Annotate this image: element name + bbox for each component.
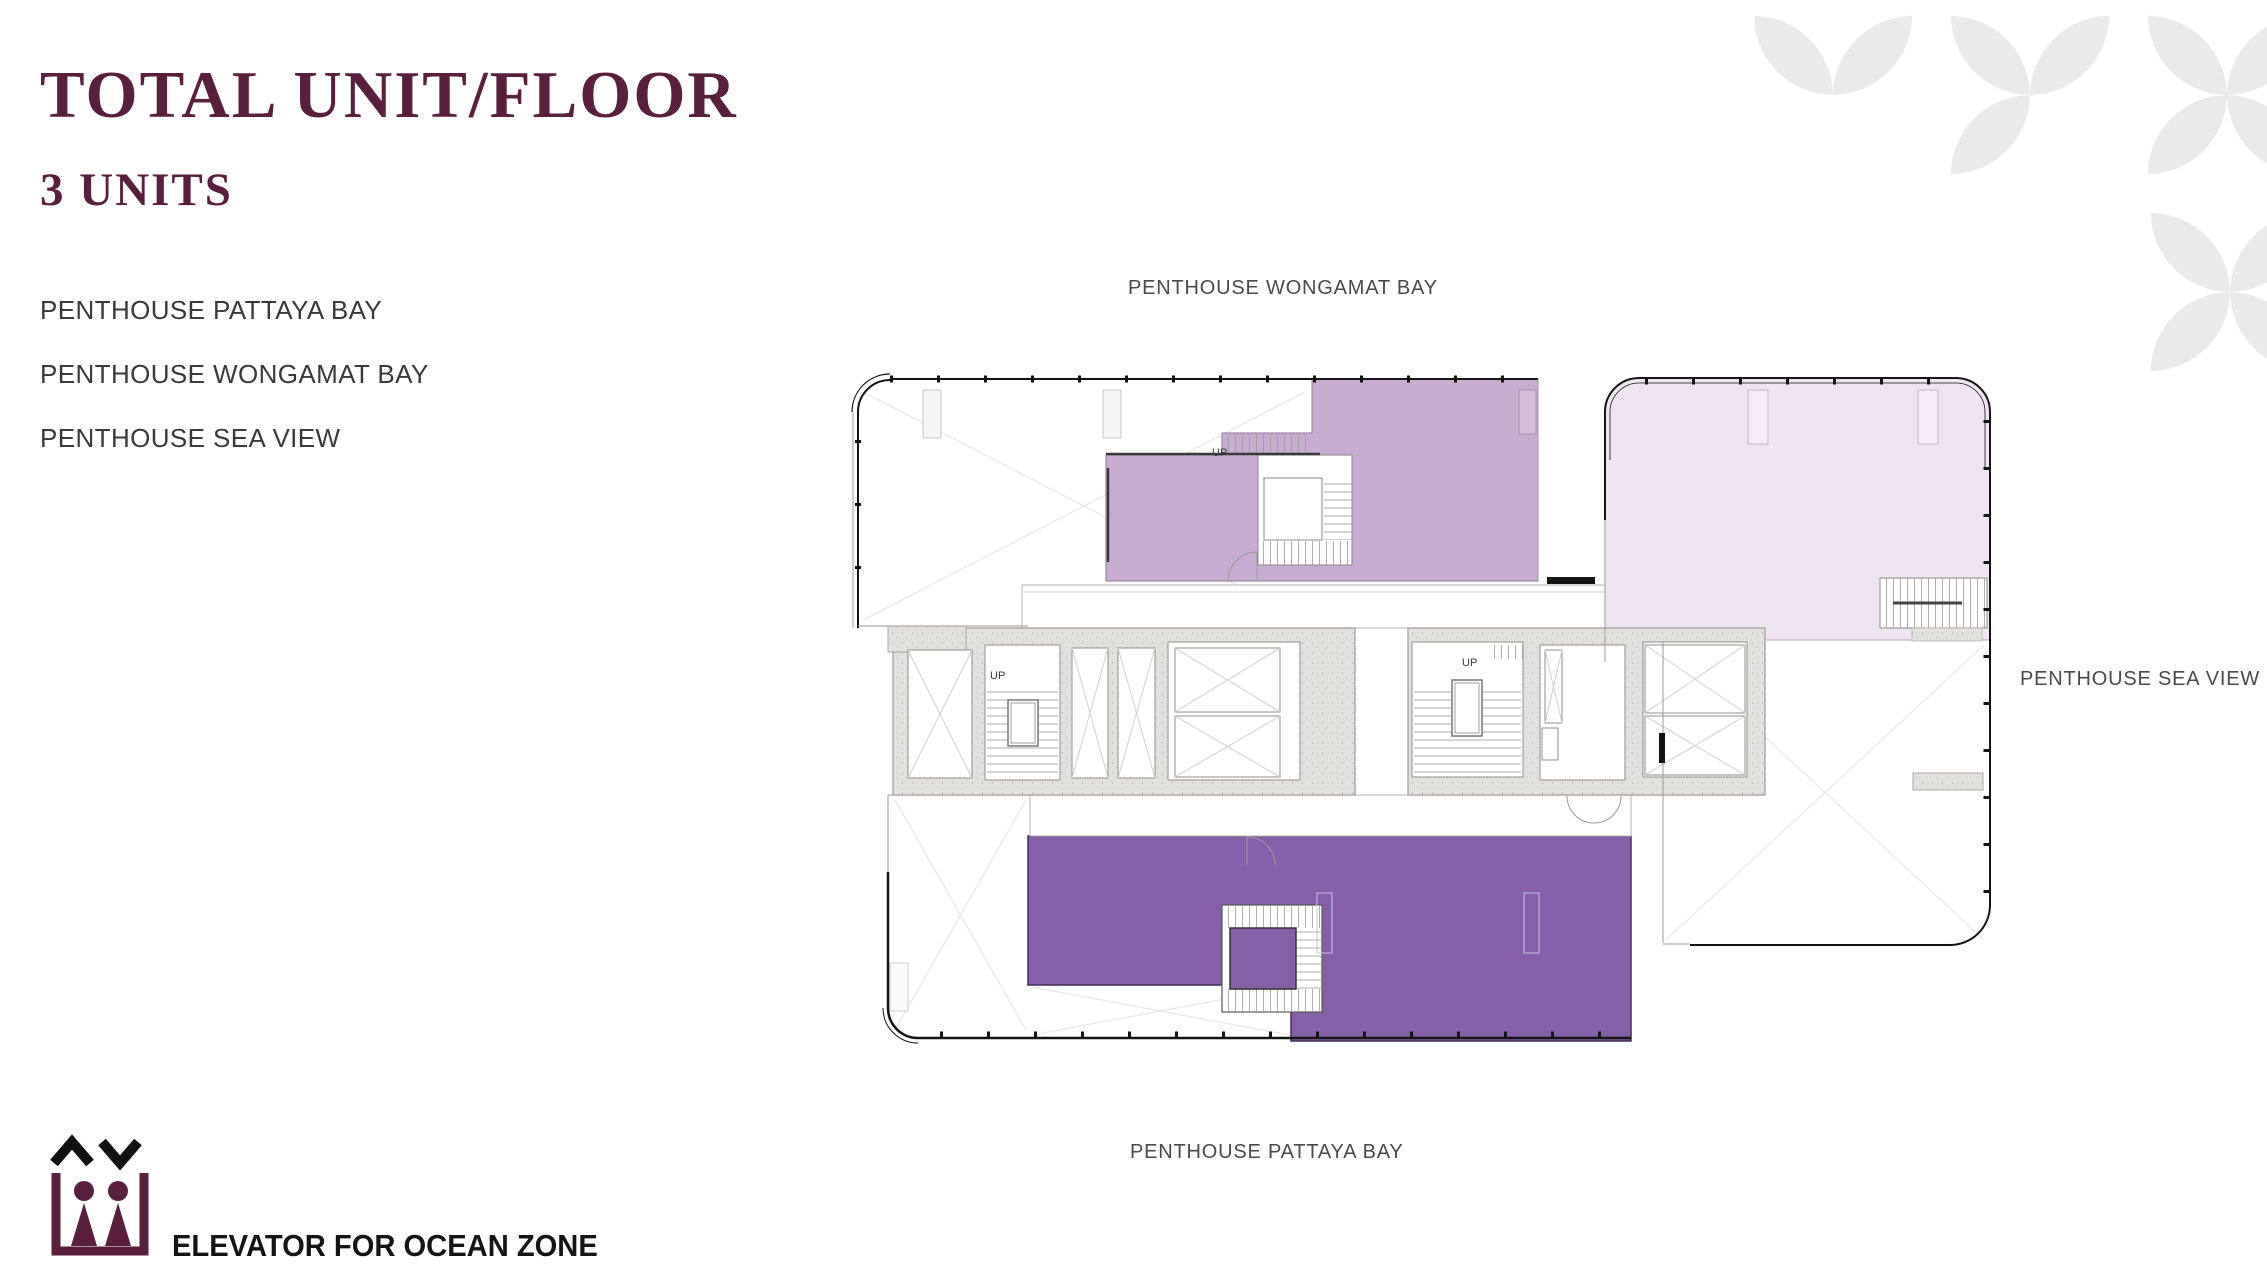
unit-list: PENTHOUSE PATTAYA BAY PENTHOUSE WONGAMAT…: [40, 295, 429, 487]
pattaya-stair: [1222, 905, 1322, 1012]
page-title: TOTAL UNIT/FLOOR: [40, 60, 738, 130]
lower-corridor: [1030, 795, 1631, 836]
chevron-down-icon: [102, 1142, 138, 1163]
chevron-up-icon: [54, 1142, 90, 1163]
up-label: UP: [1212, 447, 1227, 459]
unit-list-item: PENTHOUSE PATTAYA BAY: [40, 295, 429, 326]
label-pattaya: PENTHOUSE PATTAYA BAY: [1130, 1141, 1404, 1164]
elevator-legend-label: ELEVATOR FOR OCEAN ZONE: [172, 1228, 598, 1264]
label-wongamat: PENTHOUSE WONGAMAT BAY: [1128, 277, 1438, 300]
elevator-icon: [44, 1128, 156, 1262]
up-label: UP: [1462, 657, 1477, 669]
slide: TOTAL UNIT/FLOOR 3 UNITS PENTHOUSE PATTA…: [0, 0, 2267, 1282]
elevator-cab-shape: [56, 1173, 144, 1251]
person-icons: [71, 1181, 131, 1246]
floor-plan-svg: UP UP UP: [850, 365, 2015, 1055]
unit-area-pattaya: [1028, 836, 1631, 1041]
petal-flower-group: [1755, 0, 2267, 387]
unit-list-item: PENTHOUSE SEA VIEW: [40, 423, 429, 454]
bridge-corridor: [1022, 585, 1605, 628]
label-sea-view: PENTHOUSE SEA VIEW: [2020, 668, 2260, 691]
page-subtitle: 3 UNITS: [40, 163, 233, 217]
unit-list-item: PENTHOUSE WONGAMAT BAY: [40, 359, 429, 390]
elevator-legend: ELEVATOR FOR OCEAN ZONE: [44, 1128, 744, 1268]
up-label: UP: [990, 670, 1005, 682]
